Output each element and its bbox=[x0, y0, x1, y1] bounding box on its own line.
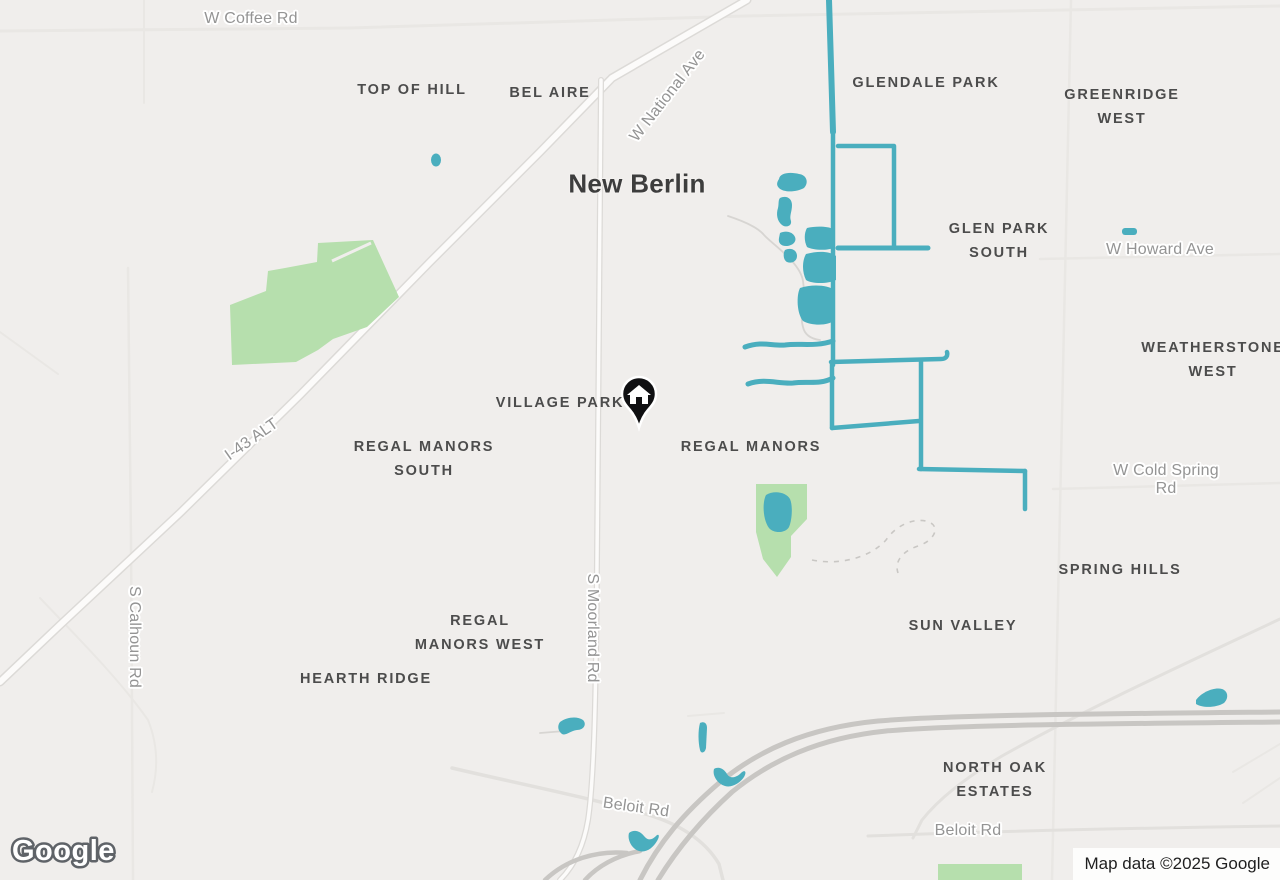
park-large-west bbox=[230, 240, 399, 365]
park-areas bbox=[230, 240, 1022, 880]
trail-dashed bbox=[812, 520, 935, 573]
park-bottom-strip bbox=[938, 864, 1022, 880]
home-marker[interactable] bbox=[622, 377, 656, 428]
map-graphics bbox=[0, 0, 1280, 880]
road-national-ave bbox=[0, 0, 747, 682]
google-logo[interactable]: Google bbox=[8, 831, 118, 874]
google-logo-graphic: Google bbox=[8, 831, 118, 869]
road-w-cold-spring bbox=[1053, 483, 1280, 489]
map-attribution: Map data ©2025 Google bbox=[1073, 848, 1280, 880]
home-marker-pin bbox=[622, 377, 656, 428]
road-s-calhoun bbox=[128, 268, 133, 880]
map-canvas[interactable] bbox=[0, 0, 1280, 880]
road-w-coffee bbox=[0, 6, 1280, 31]
svg-text:Google: Google bbox=[12, 835, 115, 867]
road-s-moorland-casing bbox=[560, 80, 601, 880]
road-w-howard bbox=[1040, 254, 1280, 259]
